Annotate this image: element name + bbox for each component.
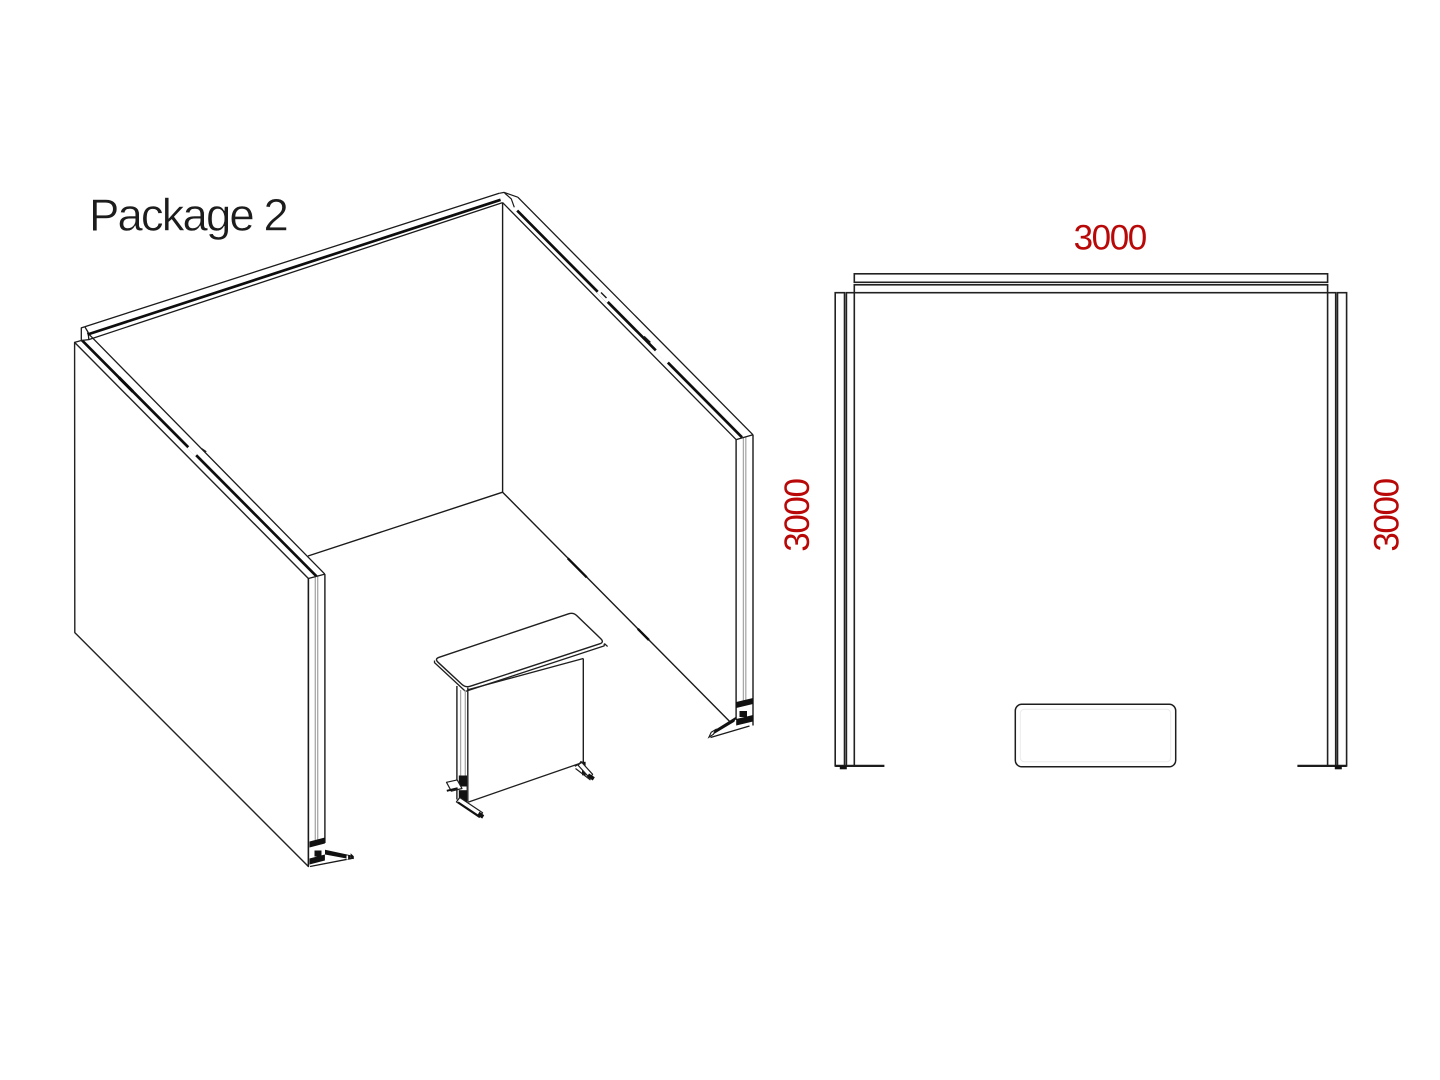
svg-text:3000: 3000	[778, 479, 817, 552]
svg-text:3000: 3000	[1368, 478, 1407, 551]
svg-text:Package 2: Package 2	[89, 190, 288, 241]
svg-text:3000: 3000	[1074, 219, 1147, 258]
